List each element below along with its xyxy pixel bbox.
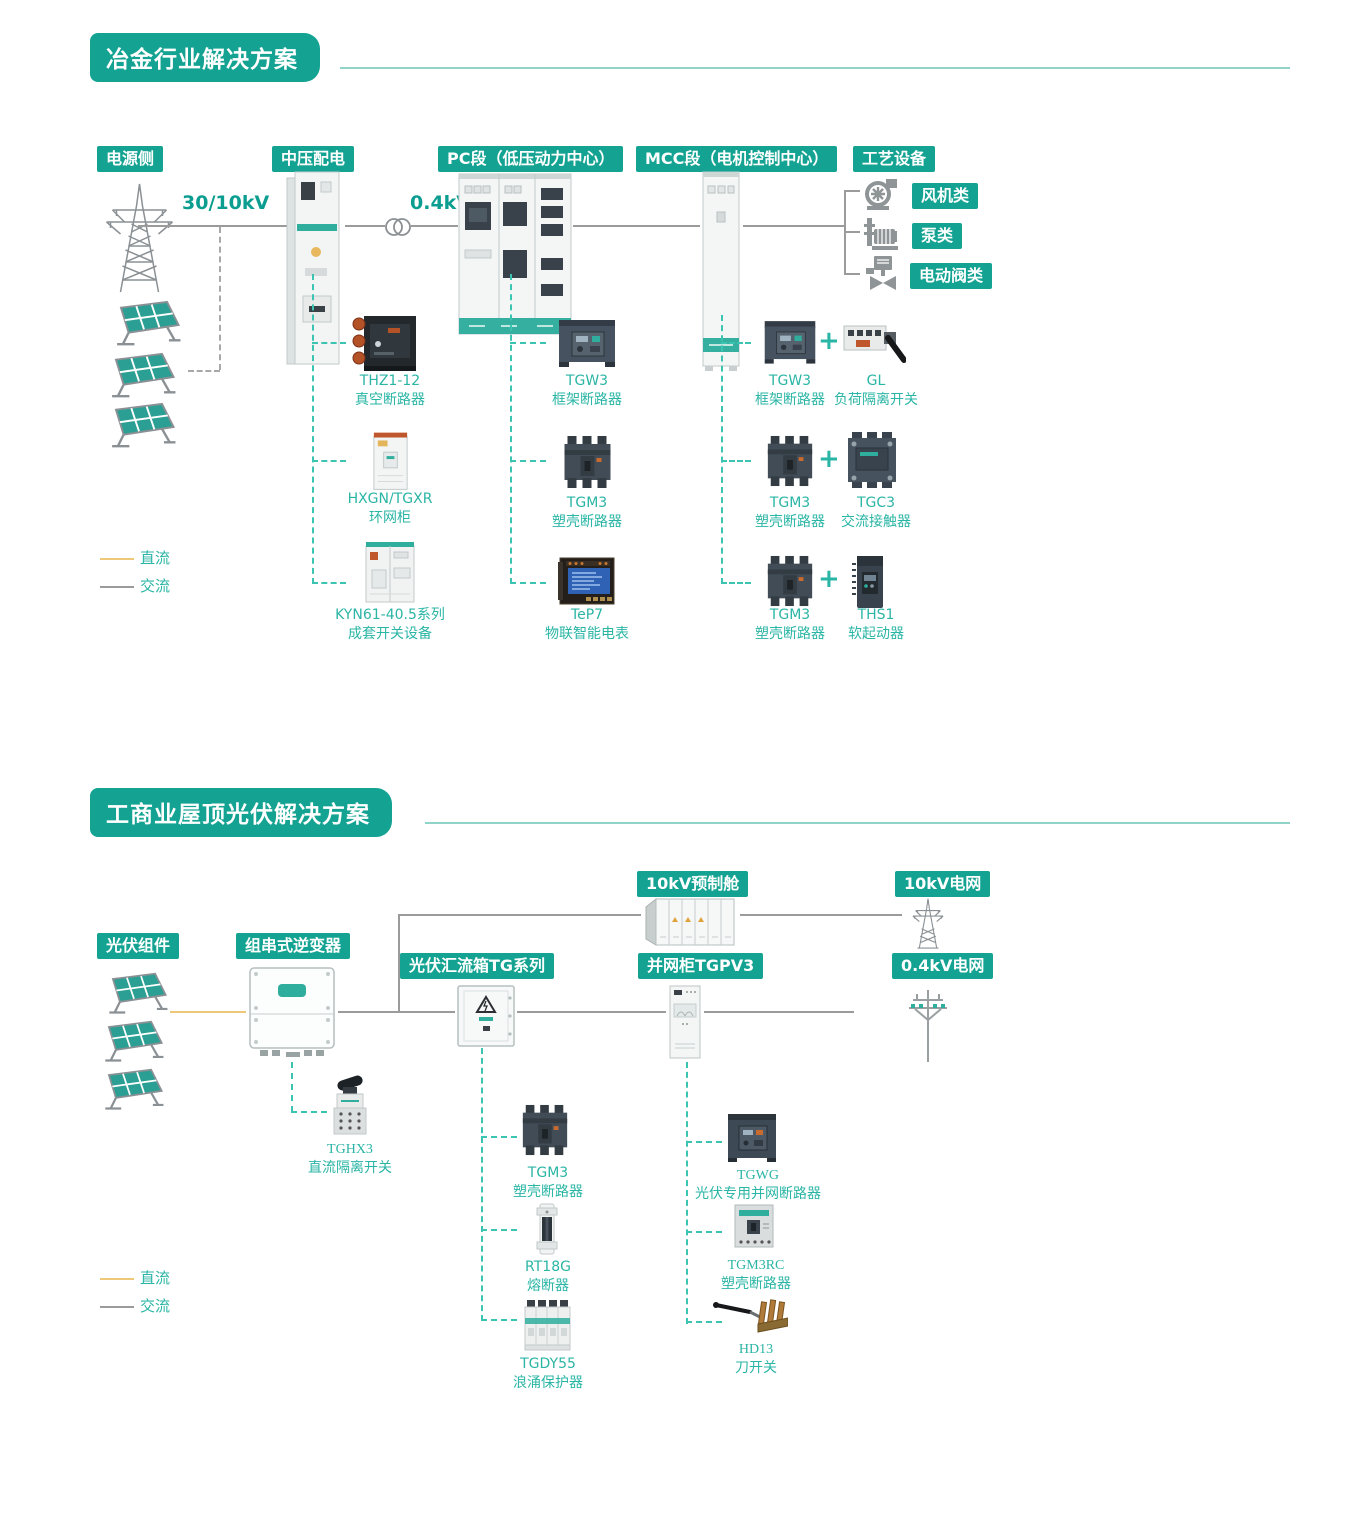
product-name: TGC3: [818, 494, 934, 513]
ac-line-tower-to-mv: [138, 225, 288, 227]
product-name: TGM3: [527, 494, 647, 513]
stage-tag-inverter: 组串式逆变器: [236, 933, 350, 959]
product-desc: 环网柜: [330, 509, 450, 528]
ac-line-inverter-to-combiner: [338, 1011, 455, 1013]
product-image-hd13: [712, 1296, 788, 1338]
product-name: TGHX3: [290, 1140, 410, 1159]
product-desc: 塑壳断路器: [696, 1275, 816, 1294]
section2-underline: [425, 822, 1290, 824]
solar-panel-icon: [100, 352, 178, 404]
product-label-kyn61: KYN61-40.5系列 成套开关设备: [320, 606, 460, 644]
section1-title: 冶金行业解决方案: [90, 33, 320, 82]
pc-products-branch-1: [510, 342, 546, 344]
pv-combiner-box-image: [455, 984, 517, 1052]
product-label-gl: GL 负荷隔离开关: [818, 372, 934, 410]
equipment-stub-fan: [844, 190, 860, 192]
product-name: HXGN/TGXR: [330, 490, 450, 509]
tghx3-connector-horizontal: [291, 1111, 327, 1113]
product-image-tgw3-mcc: [762, 316, 818, 370]
ac-line-cabinet-to-04kv: [704, 1011, 854, 1013]
product-desc: 浪涌保护器: [488, 1374, 608, 1393]
product-image-kyn61: [360, 540, 420, 610]
ac-line-transformer-to-pc: [411, 225, 458, 227]
solar-panel-icon: [100, 402, 178, 454]
equipment-tag-valve: 电动阀类: [910, 263, 992, 289]
transmission-tower-icon: [92, 176, 187, 298]
product-desc: 塑壳断路器: [527, 513, 647, 532]
mv-products-branch-3: [312, 582, 346, 584]
combiner-products-branch-2: [481, 1229, 517, 1231]
product-image-tgw3: [556, 316, 618, 372]
product-image-tghx3: [329, 1074, 371, 1142]
stage-tag-combiner: 光伏汇流箱TG系列: [400, 953, 554, 979]
tghx3-connector-vertical: [291, 1062, 293, 1112]
product-name: TGM3: [488, 1164, 608, 1183]
product-image-tgm3rc: [731, 1202, 777, 1254]
electric-valve-icon: [860, 254, 900, 298]
grid-tower-icon: [903, 895, 953, 953]
plus-sign: +: [818, 566, 840, 592]
pc-products-branch-3: [510, 582, 546, 584]
dc-branch-vertical: [219, 227, 221, 370]
fan-icon: [862, 176, 900, 214]
plus-sign: +: [818, 328, 840, 354]
product-label-tgm3-pv: TGM3 塑壳断路器: [488, 1164, 608, 1202]
product-desc: 成套开关设备: [320, 625, 460, 644]
tgpv3-cabinet-image: [666, 984, 704, 1066]
pc-products-branch-2: [510, 460, 546, 462]
product-name: THZ1-12: [330, 372, 450, 391]
product-image-tgdy55: [523, 1298, 571, 1356]
product-desc: 负荷隔离开关: [818, 391, 934, 410]
product-desc: 刀开关: [696, 1359, 816, 1378]
solar-panel-icon: [105, 300, 183, 352]
dc-line-pv-to-inverter: [170, 1011, 246, 1013]
transformer-symbol-icon: [383, 214, 413, 244]
product-label-tgc3: TGC3 交流接触器: [818, 494, 934, 532]
legend-dc-line: [100, 1278, 134, 1280]
stage-tag-10kv-cabin: 10kV预制舱: [637, 871, 748, 897]
product-image-tgc3: [844, 430, 900, 494]
product-name: TGWG: [688, 1166, 828, 1185]
stage-tag-power-source: 电源侧: [97, 146, 163, 172]
mcc-products-connector-vertical: [721, 315, 723, 584]
mv-products-branch-1: [312, 342, 346, 344]
equipment-stub-pump: [844, 231, 860, 233]
solar-panel-icon: [94, 1020, 166, 1068]
equipment-tag-fan: 风机类: [912, 183, 978, 209]
legend-dc-label: 直流: [140, 551, 170, 566]
combiner-products-branch-1: [481, 1136, 517, 1138]
legend-ac-line: [100, 1306, 134, 1308]
product-image-ths1: [850, 554, 890, 614]
product-name: TeP7: [527, 606, 647, 625]
stage-tag-pv-modules: 光伏组件: [97, 933, 179, 959]
ac-line-mv-to-transformer: [345, 225, 385, 227]
product-image-rt18g: [533, 1202, 561, 1260]
legend-ac-label: 交流: [140, 579, 170, 594]
product-label-tgwg: TGWG 光伏专用并网断路器: [688, 1166, 828, 1204]
stage-tag-04kv-grid: 0.4kV电网: [892, 953, 993, 979]
product-name: THS1: [818, 606, 934, 625]
ac-line-branch-to-cabin: [400, 914, 641, 916]
mcc-products-branch-1: [721, 342, 751, 344]
product-image-tgwg: [726, 1110, 778, 1168]
product-name: TGW3: [527, 372, 647, 391]
product-label-ths1: THS1 软起动器: [818, 606, 934, 644]
distribution-pole-icon: [903, 984, 953, 1066]
product-desc: 物联智能电表: [527, 625, 647, 644]
stage-tag-process-equipment: 工艺设备: [853, 146, 935, 172]
section1-underline: [340, 67, 1290, 69]
mcc-products-branch-2: [721, 460, 751, 462]
legend-dc-label: 直流: [140, 1271, 170, 1286]
product-label-rt18g: RT18G 熔断器: [488, 1258, 608, 1296]
product-label-tep7: TeP7 物联智能电表: [527, 606, 647, 644]
product-label-thz1-12: THZ1-12 真空断路器: [330, 372, 450, 410]
combiner-products-connector-vertical: [481, 1048, 483, 1321]
product-image-tgm3-mcc: [764, 433, 816, 493]
legend-dc-line: [100, 558, 134, 560]
product-image-tgm3-mcc2: [764, 553, 816, 613]
ac-line-combiner-to-cabinet: [517, 1011, 666, 1013]
ac-line-mcc-to-equipment: [743, 225, 844, 227]
product-image-tgm3-pv: [519, 1102, 571, 1162]
string-inverter-image: [246, 966, 338, 1066]
product-desc: 框架断路器: [527, 391, 647, 410]
solar-panel-icon: [98, 972, 170, 1020]
mv-switchgear-cabinet-image: [283, 166, 345, 376]
combiner-products-branch-3: [481, 1319, 517, 1321]
solution-diagram-page: 冶金行业解决方案 电源侧 中压配电 PC段（低压动力中心） MCC段（电机控制中…: [0, 0, 1350, 1528]
product-label-tgw3: TGW3 框架断路器: [527, 372, 647, 410]
equipment-stub-valve: [844, 273, 860, 275]
product-desc: 塑壳断路器: [488, 1183, 608, 1202]
product-name: RT18G: [488, 1258, 608, 1277]
product-label-tghx3: TGHX3 直流隔离开关: [290, 1140, 410, 1178]
ac-line-cabin-to-10kv: [740, 914, 902, 916]
product-desc: 交流接触器: [818, 513, 934, 532]
legend-ac-label: 交流: [140, 1299, 170, 1314]
legend-ac-line: [100, 586, 134, 588]
product-image-thz1-12: [348, 314, 420, 376]
equipment-tag-pump: 泵类: [912, 223, 962, 249]
pump-icon: [862, 216, 900, 256]
product-image-tep7: [556, 556, 618, 612]
plus-sign: +: [818, 446, 840, 472]
grid-products-branch-1: [686, 1141, 722, 1143]
product-image-tgm3: [560, 434, 615, 494]
product-desc: 真空断路器: [330, 391, 450, 410]
ac-line-pc-to-mcc: [573, 225, 700, 227]
product-desc: 熔断器: [488, 1277, 608, 1296]
section2-title: 工商业屋顶光伏解决方案: [90, 788, 392, 837]
product-label-tgm3: TGM3 塑壳断路器: [527, 494, 647, 532]
prefab-cabin-image: [642, 895, 738, 951]
product-label-hxgn: HXGN/TGXR 环网柜: [330, 490, 450, 528]
product-name: TGDY55: [488, 1355, 608, 1374]
product-name: HD13: [696, 1340, 816, 1359]
product-desc: 直流隔离开关: [290, 1159, 410, 1178]
mv-products-connector-vertical: [312, 274, 314, 584]
product-image-gl-switch: [842, 322, 906, 370]
voltage-label-primary: 30/10kV: [182, 192, 269, 214]
solar-panel-icon: [94, 1068, 166, 1116]
grid-products-branch-2: [686, 1231, 722, 1233]
mv-products-branch-2: [312, 460, 346, 462]
product-label-hd13: HD13 刀开关: [696, 1340, 816, 1378]
pc-products-connector-vertical: [510, 274, 512, 584]
mcc-products-branch-3: [721, 582, 751, 584]
stage-tag-10kv-grid: 10kV电网: [895, 871, 990, 897]
product-label-tgdy55: TGDY55 浪涌保护器: [488, 1355, 608, 1393]
product-name: GL: [818, 372, 934, 391]
product-label-tgm3rc: TGM3RC 塑壳断路器: [696, 1256, 816, 1294]
stage-tag-grid-cabinet: 并网柜TGPV3: [638, 953, 763, 979]
ac-branch-to-cabin: [398, 914, 400, 1013]
product-image-hxgn: [368, 430, 413, 496]
product-desc: 软起动器: [818, 625, 934, 644]
product-name: KYN61-40.5系列: [320, 606, 460, 625]
product-name: TGM3RC: [696, 1256, 816, 1275]
dc-branch-horizontal: [188, 370, 220, 372]
